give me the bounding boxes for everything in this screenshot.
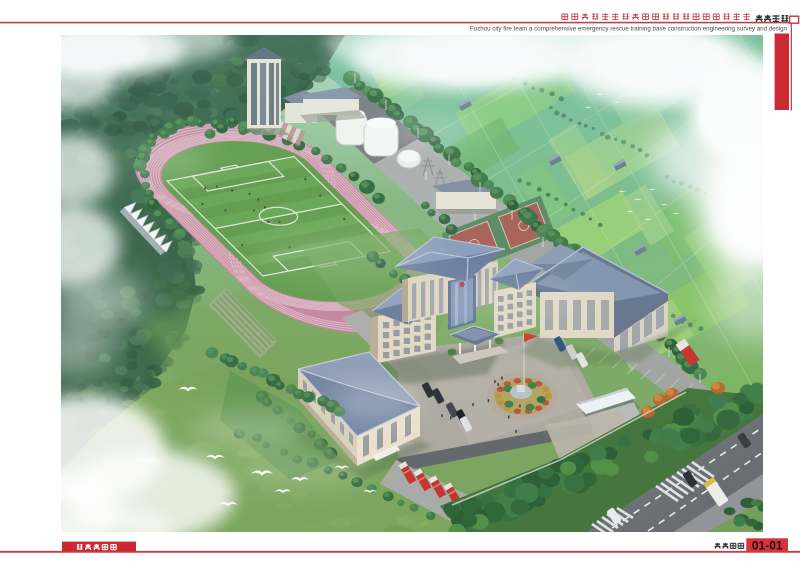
svg-text:01-01: 01-01 <box>752 538 783 552</box>
svg-text:Fuzhou city fire team a compre: Fuzhou city fire team a comprehensive em… <box>470 25 788 32</box>
